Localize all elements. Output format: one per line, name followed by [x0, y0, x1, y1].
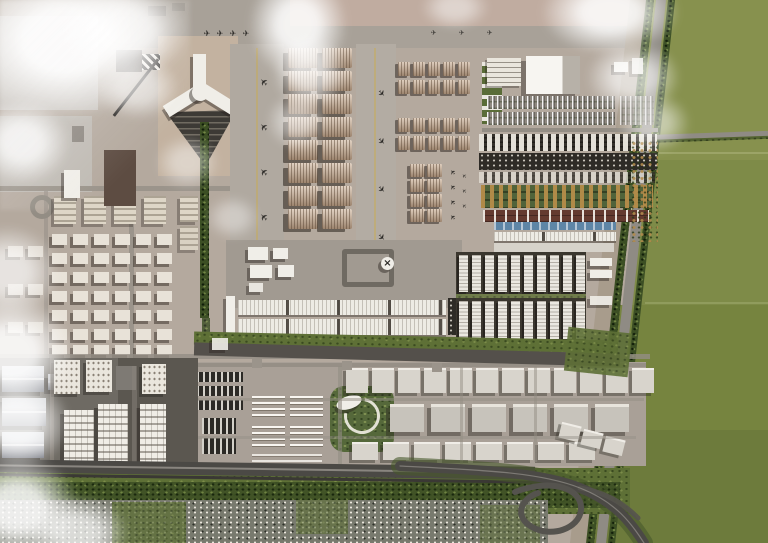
warehouse-bar-a-4 [498, 255, 507, 292]
office-block-3 [140, 404, 166, 462]
small-hangar-row-b1-3 [428, 118, 440, 132]
house-row-2-2 [73, 253, 88, 264]
cloud-ne-3 [616, 92, 691, 154]
house-row-2-3 [94, 253, 109, 264]
apron-aircraft-row-1: ✈ [203, 30, 211, 38]
warehouse-top-row-6 [476, 368, 498, 393]
ga-hangar-col-1-2 [410, 179, 425, 192]
house-row-6-3 [94, 329, 109, 340]
expo-north-units [487, 58, 521, 86]
dark-unit-row-4 [202, 418, 236, 434]
house-row-4-4 [115, 291, 130, 302]
central-building-3 [250, 265, 272, 278]
apron-aircraft-row-2: ✈ [216, 30, 224, 38]
house-row-5-6 [157, 310, 172, 321]
small-hangar-row-a1-3 [428, 62, 440, 76]
small-hangar-row-a2-4 [443, 80, 455, 94]
house-row-2-4 [115, 253, 130, 264]
smoke-plume-3 [266, 92, 328, 150]
dark-unit-row-5 [202, 438, 236, 454]
house-row-2-5 [136, 253, 151, 264]
warehouse-bar-b-1 [459, 301, 468, 339]
big-box-row-6 [595, 404, 629, 432]
helicopter: × [383, 259, 392, 269]
house-row-3-2 [73, 272, 88, 283]
lower-road-v1 [338, 366, 342, 464]
small-hangar-row-a1-2 [413, 62, 425, 76]
house-row-5-5 [136, 310, 151, 321]
highway-interchange [420, 440, 768, 543]
ga-hangar-col-1-1 [410, 164, 425, 177]
house-row-3-5 [136, 272, 151, 283]
house-row-1-4 [115, 234, 130, 245]
warehouse-bar-a-8 [550, 255, 559, 292]
house-row-3-6 [157, 272, 172, 283]
warehouse-bar-a-2 [472, 255, 481, 292]
house-row-4-6 [157, 291, 172, 302]
dark-unit-row-1 [197, 372, 243, 382]
big-box-row-3 [472, 404, 506, 432]
warehouse-east-3 [590, 296, 612, 305]
house-row-1-2 [73, 234, 88, 245]
warehouse-bar-b-4 [498, 301, 507, 339]
roadside-mixed-strip [630, 140, 658, 242]
long-building-2 [494, 243, 614, 252]
small-hangar-row-b1-5 [458, 118, 470, 132]
house-row-1-3 [94, 234, 109, 245]
dotted-building-3 [142, 364, 166, 394]
hangar-column-east-6 [322, 163, 352, 183]
small-hangar-row-b2-5 [458, 136, 470, 150]
house-row-1-6 [157, 234, 172, 245]
small-hangar-row-b2-1 [398, 136, 410, 150]
warehouse-bar-a-6 [524, 255, 533, 292]
small-hangar-row-a2-5 [458, 80, 470, 94]
small-hangar-row-b2-3 [428, 136, 440, 150]
house-row-3-3 [94, 272, 109, 283]
dark-unit-row-2 [197, 386, 243, 396]
small-hangar-row-a1-4 [443, 62, 455, 76]
house-row-6-4 [115, 329, 130, 340]
warehouse-bar-b-8 [550, 301, 559, 339]
field-boundary-1 [655, 152, 768, 154]
hangar-column-west-7 [288, 186, 318, 206]
small-hangar-row-a1-5 [458, 62, 470, 76]
warehouse-bar-b-7 [537, 301, 546, 339]
warehouse-long-row-1 [238, 300, 446, 315]
small-hangar-row-a2-2 [413, 80, 425, 94]
runway-stub-1 [252, 359, 262, 368]
central-building-2 [273, 248, 288, 259]
parking-lot-row-2 [487, 112, 615, 125]
house-row-4-3 [94, 291, 109, 302]
warehouse-top-row-7 [502, 368, 524, 393]
lower-road-h2 [196, 398, 644, 401]
residential-block-e2 [180, 226, 198, 250]
runway-stub-2 [342, 361, 352, 370]
haze-nw [0, 0, 190, 210]
house-row-6-2 [73, 329, 88, 340]
house-row-3-4 [115, 272, 130, 283]
house-row-4-5 [136, 291, 151, 302]
apron-aircraft-row-3: ✈ [229, 30, 237, 38]
house-row-6-6 [157, 329, 172, 340]
house-row-1-1 [52, 234, 67, 245]
warehouse-top-row-9 [554, 368, 576, 393]
runway-pad [212, 338, 228, 350]
small-hangar-row-b1-4 [443, 118, 455, 132]
central-building-4 [278, 265, 294, 277]
small-hangar-row-b1-1 [398, 118, 410, 132]
warehouse-bar-a-7 [537, 255, 546, 292]
box-row-2-1 [352, 442, 378, 460]
hangar-column-west-6 [288, 163, 318, 183]
big-box-row-1 [390, 404, 424, 432]
house-row-6-5 [136, 329, 151, 340]
ga-hangar-col-2-3 [427, 194, 442, 207]
lower-road-h3 [196, 436, 636, 439]
warehouse-top-row-3 [398, 368, 420, 393]
expo-hall [526, 56, 580, 94]
small-hangar-row-a2-3 [428, 80, 440, 94]
warehouse-bar-a-10 [576, 255, 585, 292]
warehouse-bar-b-5 [511, 301, 520, 339]
urban-band-mixed [479, 172, 655, 183]
urban-band-maroon [483, 210, 649, 222]
office-road-v2 [132, 366, 137, 466]
warehouse-top-row-12 [632, 368, 654, 393]
warehouse-left-stack [226, 296, 235, 336]
warehouse-bar-a-3 [485, 255, 494, 292]
field-boundary-2 [645, 302, 768, 304]
masterplan-aerial-view: ✈✈✈✈✈✈✈✈✈✈✈✈✈✈✈✈×✈✈✈✈✈✈✈ [0, 0, 768, 543]
small-hangar-row-b2-2 [413, 136, 425, 150]
warehouse-top-row-1 [346, 368, 368, 393]
apron-aircraft-row-2-1: ✈ [430, 30, 437, 37]
house-row-5-2 [73, 310, 88, 321]
warehouse-bar-a-1 [459, 255, 468, 292]
central-building-1 [248, 247, 268, 260]
interchange-loop [515, 486, 581, 532]
warehouse-bar-b-2 [472, 301, 481, 339]
ga-hangar-col-2-1 [427, 164, 442, 177]
runway-stub-3 [432, 363, 442, 372]
village-green-2 [296, 500, 348, 534]
warehouse-east-2 [590, 270, 612, 278]
warehouse-bar-a-9 [563, 255, 572, 292]
house-row-4-2 [73, 291, 88, 302]
urban-band-gold [481, 185, 653, 208]
apron-aircraft-row-2-2: ✈ [458, 30, 465, 37]
green-wedge-east [564, 327, 632, 377]
ga-hangar-col-1-4 [410, 209, 425, 222]
big-box-row-4 [513, 404, 547, 432]
dark-unit-row-3 [197, 400, 243, 410]
central-building-5 [249, 283, 263, 292]
house-row-5-3 [94, 310, 109, 321]
tiny-house-grid-5 [252, 454, 322, 462]
ga-hangar-col-2-2 [427, 179, 442, 192]
house-row-5-4 [115, 310, 130, 321]
warehouse-east-1 [590, 258, 612, 266]
ga-hangar-col-1-3 [410, 194, 425, 207]
cloud-c-2 [205, 195, 260, 240]
ga-hangar-col-2-4 [427, 209, 442, 222]
warehouse-top-row-8 [528, 368, 550, 393]
warehouse-top-row-2 [372, 368, 394, 393]
warehouse-bar-a-5 [511, 255, 520, 292]
small-hangar-row-a1-1 [398, 62, 410, 76]
office-block-2 [98, 404, 128, 466]
hangar-column-east-8 [322, 209, 352, 229]
small-hangar-row-b1-2 [413, 118, 425, 132]
house-row-1-5 [136, 234, 151, 245]
long-building-1 [494, 232, 616, 241]
apron-aircraft-row-2-3: ✈ [486, 30, 493, 37]
hangar-column-east-7 [322, 186, 352, 206]
warehouse-bar-b-6 [524, 301, 533, 339]
house-row-2-6 [157, 253, 172, 264]
hangar-column-west-8 [288, 209, 318, 229]
small-hangar-row-a2-1 [398, 80, 410, 94]
warehouse-bar-b-3 [485, 301, 494, 339]
small-hangar-row-b2-4 [443, 136, 455, 150]
dotted-building-2 [86, 360, 112, 392]
urban-band-blue [494, 222, 616, 230]
hangar-column-east-5 [322, 140, 352, 160]
terminal-hub [192, 84, 209, 101]
